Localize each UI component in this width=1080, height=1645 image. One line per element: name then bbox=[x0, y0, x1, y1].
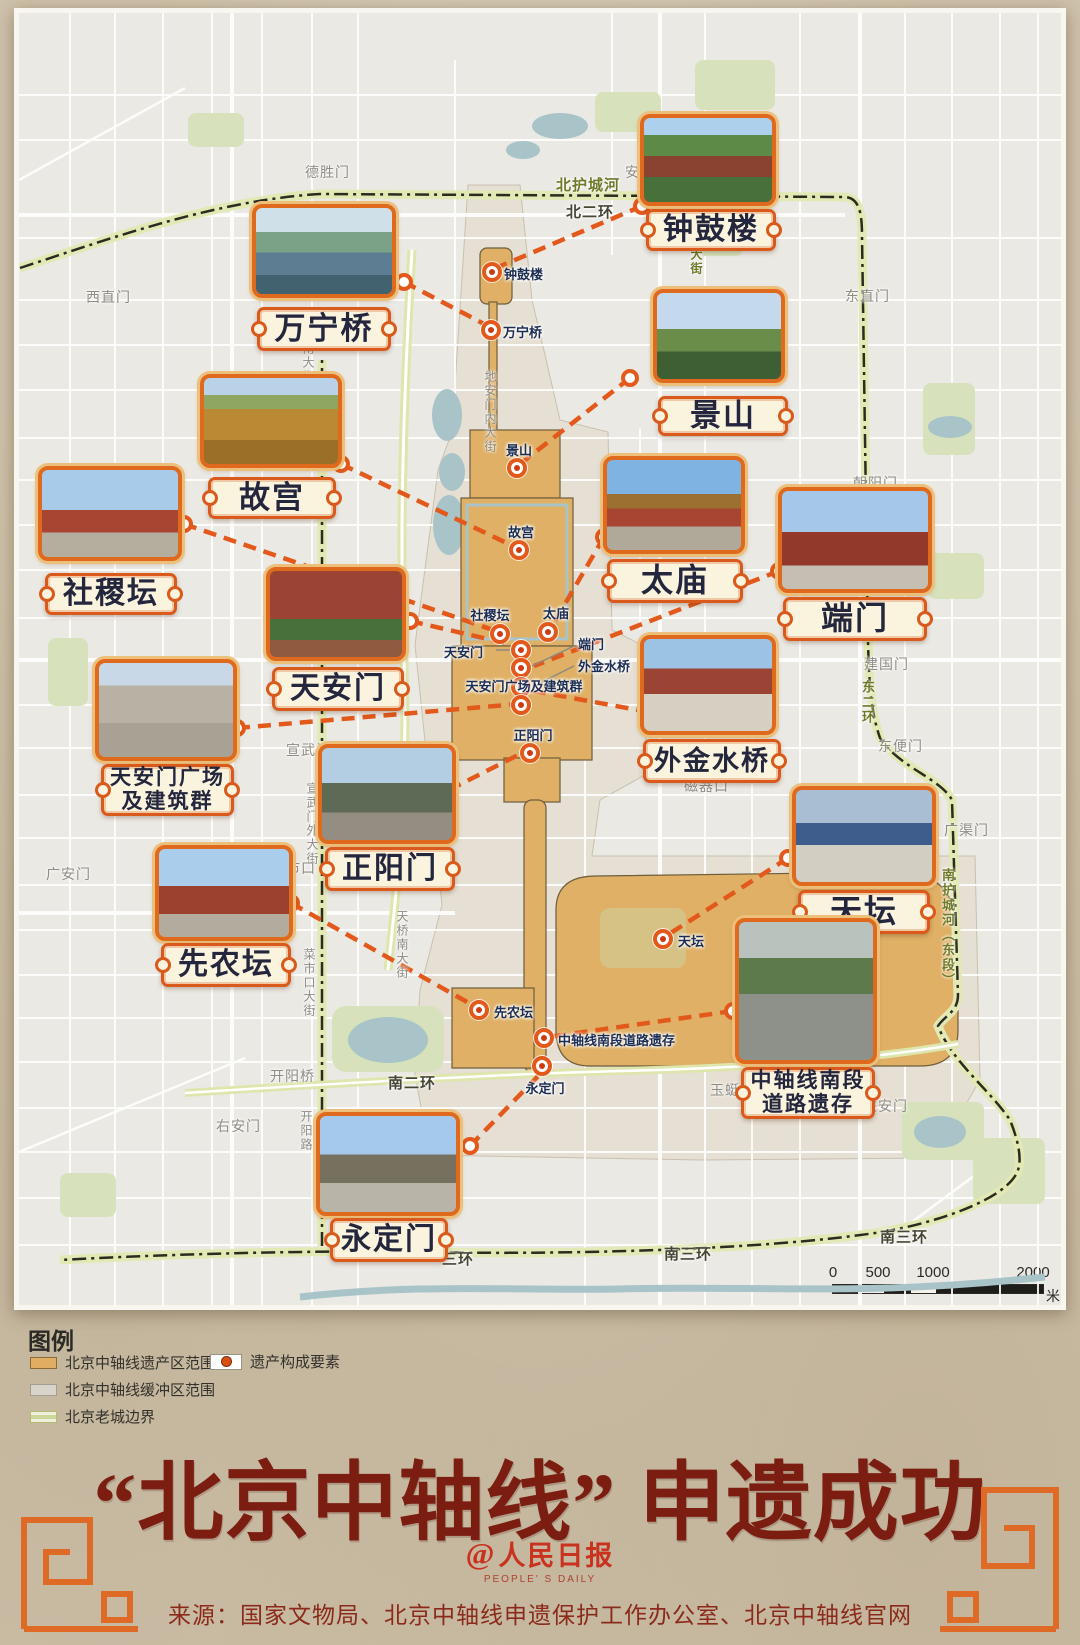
site-plaque-tiananmen: 天安门 bbox=[272, 667, 404, 711]
marker-gugong bbox=[509, 540, 529, 560]
street-label-kaiyanglu: 开阳路 bbox=[298, 1110, 315, 1152]
marker-tiantan bbox=[653, 929, 673, 949]
street-label-dongbianmen: 东便门 bbox=[878, 736, 923, 756]
marker-label-waijinshuiqiao: 外金水桥 bbox=[578, 656, 630, 675]
street-label-nanhuchenghe: 南护城河（东段） bbox=[938, 868, 957, 988]
street-label-deshengmen: 德胜门 bbox=[305, 162, 350, 182]
site-photo-tiantan bbox=[792, 786, 936, 886]
logo-en-text: PEOPLE' S DAILY bbox=[466, 1574, 615, 1585]
site-plaque-label-jingshan: 景山 bbox=[690, 399, 756, 434]
site-plaque-zhonggulou: 钟鼓楼 bbox=[646, 209, 776, 251]
street-label-nansanhuan-mid: 南三环 bbox=[664, 1243, 712, 1264]
street-label-kaiyangqiao: 开阳桥 bbox=[270, 1066, 315, 1086]
site-photo-duanmen bbox=[778, 487, 932, 593]
street-label-caishikou-dajie: 菜市口大街 bbox=[301, 948, 318, 1018]
corner-ornament-left-icon bbox=[18, 1462, 218, 1632]
site-photo-waijinshuiqiao bbox=[640, 635, 776, 735]
site-photo-tiananmen bbox=[266, 567, 406, 661]
street-label-dajie: 大街 bbox=[688, 248, 705, 276]
marker-guangchang bbox=[511, 695, 531, 715]
site-plaque-yongdingmen: 永定门 bbox=[330, 1218, 448, 1262]
marker-zhonggulou bbox=[482, 262, 502, 282]
site-photo-daoluyicun bbox=[735, 918, 877, 1064]
site-photo-shejitan bbox=[38, 466, 182, 561]
site-plaque-zhengyangmen: 正阳门 bbox=[325, 847, 455, 891]
site-photo-yongdingmen bbox=[316, 1112, 460, 1216]
street-label-beierhuan: 北二环 bbox=[566, 201, 614, 222]
marker-label-zhengyangmen: 正阳门 bbox=[513, 725, 552, 744]
site-plaque-xiannongtan: 先农坛 bbox=[161, 943, 291, 987]
street-label-youanmen: 右安门 bbox=[216, 1116, 261, 1136]
street-label-xizhimen: 西直门 bbox=[86, 287, 131, 307]
marker-label-zhonggulou: 钟鼓楼 bbox=[504, 264, 543, 283]
site-photo-guangchang bbox=[95, 659, 237, 761]
marker-zhengyangmen bbox=[520, 743, 540, 763]
street-label-jianguomen: 建国门 bbox=[864, 654, 909, 674]
marker-tiananmen bbox=[511, 640, 531, 660]
site-plaque-label-wanningqiao: 万宁桥 bbox=[275, 312, 374, 347]
marker-label-shejitan: 社稷坛 bbox=[470, 605, 509, 624]
marker-label-tiantan: 天坛 bbox=[678, 931, 704, 950]
marker-label-duanmen: 端门 bbox=[578, 634, 604, 653]
marker-label-guangchang: 天安门广场及建筑群 bbox=[465, 676, 582, 695]
site-plaque-label-daoluyicun: 中轴线南段 道路遗存 bbox=[751, 1069, 866, 1116]
site-plaque-jingshan: 景山 bbox=[658, 396, 788, 436]
site-photo-taimiao bbox=[603, 456, 745, 554]
street-label-guangqumen: 广渠门 bbox=[944, 820, 989, 840]
site-plaque-label-guangchang: 天安门广场 及建筑群 bbox=[110, 766, 225, 813]
site-plaque-label-duanmen: 端门 bbox=[821, 601, 889, 637]
site-plaque-duanmen: 端门 bbox=[783, 597, 927, 641]
site-plaque-shejitan: 社稷坛 bbox=[45, 573, 177, 615]
marker-label-xiannongtan: 先农坛 bbox=[494, 1002, 533, 1021]
site-plaque-gugong: 故宫 bbox=[208, 477, 336, 519]
street-label-dongerhuan: 东二环 bbox=[858, 680, 877, 725]
street-label-nansanhuan-east: 南三环 bbox=[880, 1226, 928, 1247]
marker-jingshan bbox=[507, 458, 527, 478]
street-label-guanganmen: 广安门 bbox=[46, 864, 91, 884]
site-plaque-label-yongdingmen: 永定门 bbox=[341, 1223, 437, 1257]
site-photo-zhengyangmen bbox=[318, 744, 456, 844]
peoples-daily-logo: @ 人民日报 PEOPLE' S DAILY bbox=[466, 1534, 615, 1585]
site-plaque-label-xiannongtan: 先农坛 bbox=[178, 948, 274, 982]
site-plaque-label-shejitan: 社稷坛 bbox=[63, 577, 159, 611]
marker-label-jingshan: 景山 bbox=[506, 440, 532, 459]
street-label-beihuchenghe: 北护城河 bbox=[556, 174, 620, 195]
corner-ornament-right-icon bbox=[862, 1462, 1062, 1632]
street-label-tianqiaonan-dajie: 天桥南大街 bbox=[394, 910, 411, 980]
site-photo-gugong bbox=[200, 374, 342, 468]
marker-label-tiananmen: 天安门 bbox=[444, 642, 483, 661]
marker-label-gugong: 故宫 bbox=[508, 522, 534, 541]
site-plaque-label-tiananmen: 天安门 bbox=[290, 672, 386, 706]
site-plaque-label-taimiao: 太庙 bbox=[641, 563, 709, 599]
site-photo-xiannongtan bbox=[155, 845, 293, 941]
site-plaque-guangchang: 天安门广场 及建筑群 bbox=[101, 764, 234, 816]
site-photo-jingshan bbox=[653, 289, 785, 383]
site-plaque-label-gugong: 故宫 bbox=[239, 481, 305, 516]
site-plaque-label-waijinshuiqiao: 外金水桥 bbox=[654, 746, 770, 776]
marker-taimiao bbox=[538, 622, 558, 642]
site-photo-zhonggulou bbox=[640, 114, 776, 206]
marker-label-taimiao: 太庙 bbox=[543, 603, 569, 622]
marker-label-yongdingmen: 永定门 bbox=[525, 1078, 564, 1097]
marker-xiannongtan bbox=[469, 1000, 489, 1020]
marker-duanmen bbox=[511, 658, 531, 678]
site-plaque-waijinshuiqiao: 外金水桥 bbox=[643, 739, 781, 783]
street-label-dianmennei-dajie: 地安门内大街 bbox=[482, 370, 499, 454]
site-plaque-label-zhonggulou: 钟鼓楼 bbox=[663, 213, 759, 247]
site-photo-wanningqiao bbox=[252, 204, 396, 298]
marker-daoluyicun bbox=[534, 1028, 554, 1048]
street-label-nanerhuan: 南二环 bbox=[388, 1072, 436, 1093]
poster: 德胜门 安定门 北护城河 北二环 西直门 东直门 朝阳门 建国门 东便门 广渠门… bbox=[0, 0, 1080, 1645]
logo-cn-text: 人民日报 bbox=[498, 1534, 614, 1573]
marker-yongdingmen bbox=[532, 1056, 552, 1076]
site-plaque-label-zhengyangmen: 正阳门 bbox=[342, 852, 438, 886]
marker-shejitan bbox=[490, 624, 510, 644]
site-plaque-taimiao: 太庙 bbox=[607, 559, 743, 603]
logo-at-icon: @ bbox=[466, 1536, 495, 1572]
marker-wanningqiao bbox=[481, 320, 501, 340]
marker-label-wanningqiao: 万宁桥 bbox=[503, 322, 542, 341]
marker-label-daoluyicun: 中轴线南段道路遗存 bbox=[558, 1030, 675, 1049]
site-plaque-wanningqiao: 万宁桥 bbox=[257, 307, 391, 351]
site-plaque-daoluyicun: 中轴线南段 道路遗存 bbox=[741, 1067, 875, 1119]
street-label-dongzhimen: 东直门 bbox=[845, 286, 890, 306]
